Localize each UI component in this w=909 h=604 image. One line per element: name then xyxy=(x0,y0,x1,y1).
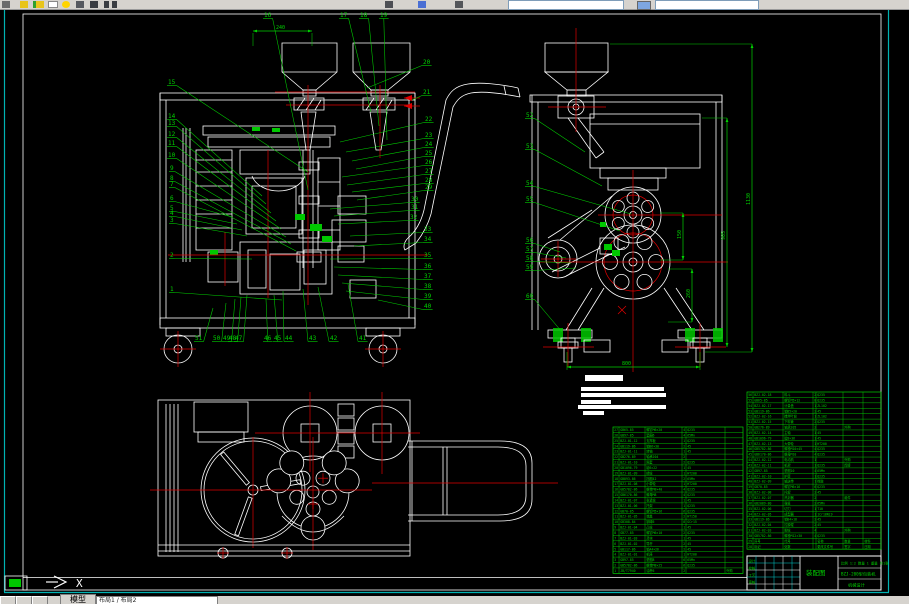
bom-cell: 螺钉M5×12 xyxy=(784,397,800,402)
bom-cell: 1 xyxy=(683,450,685,454)
dim-arrow xyxy=(682,256,685,260)
bom-cell: 切刀 xyxy=(784,506,790,511)
bom-cell: 45 xyxy=(817,436,821,440)
bom-cell: 40 xyxy=(748,480,752,484)
bom-cell: 垫圈10 xyxy=(784,468,794,473)
pan-icon[interactable] xyxy=(385,1,393,8)
bom-cell: BZJ-01-12 xyxy=(620,439,637,443)
bom-cell: GB77-85 xyxy=(620,531,634,535)
callout-leader xyxy=(347,175,424,186)
callout-leader xyxy=(175,172,286,238)
bom-cell: 2 xyxy=(814,409,816,413)
bom-cell: 8 xyxy=(814,398,816,402)
bom-cell: GB5782-86 xyxy=(620,564,637,568)
zoom-icon[interactable] xyxy=(418,1,426,8)
callout-number: 22 xyxy=(425,116,433,123)
ucs-x-label: X xyxy=(76,577,83,590)
bom-cell: 45 xyxy=(817,409,821,413)
callout-number: 3 xyxy=(170,217,174,224)
bom-cell: 51 xyxy=(748,420,752,424)
callout-leader xyxy=(334,211,410,217)
bom-cell: 31 xyxy=(748,529,752,533)
bom-cell: 14 xyxy=(614,498,618,502)
callout-number: 2 xyxy=(170,252,174,259)
bom-cell: Q235 xyxy=(687,531,695,535)
bom-cell: Q235 xyxy=(817,420,825,424)
hopper-right xyxy=(353,43,410,150)
bom-cell: 1 xyxy=(814,463,816,467)
callout-number: 18 xyxy=(360,12,368,19)
bom-cell: 3 xyxy=(614,558,616,562)
bom-cell: 外购 xyxy=(844,457,850,462)
tab-nav-prev-button[interactable] xyxy=(16,596,32,604)
bom-cell: 30 xyxy=(748,534,752,538)
bom-cell: 43 xyxy=(748,463,752,467)
bom-cell: 材料 xyxy=(864,538,871,543)
bom-cell: Q235 xyxy=(817,398,825,402)
bom-cell: 2 xyxy=(614,564,616,568)
bom-cell: 外购 xyxy=(844,528,850,533)
bom-cell: 9 xyxy=(614,526,616,530)
bom-cell: HT200 xyxy=(687,553,697,557)
bom-cell: 32 xyxy=(748,523,752,527)
cut-icon[interactable] xyxy=(76,1,84,8)
print-icon[interactable] xyxy=(48,1,58,8)
title-sig-label: 工艺 xyxy=(749,573,756,578)
bom-cell: 7 xyxy=(614,536,616,540)
bom-cell: 6 xyxy=(683,509,685,513)
bom-cell: JB/T7940 xyxy=(620,569,635,573)
bom-cell: 滑块 xyxy=(646,535,653,540)
callout-leader xyxy=(535,244,560,253)
bom-cell: 1 xyxy=(814,458,816,462)
callout-number: 17 xyxy=(340,12,348,19)
bom-cell: 标记 xyxy=(754,544,761,549)
callout-number: 55 xyxy=(526,196,534,203)
dim-text: 800 xyxy=(622,361,631,367)
bom-cell: 15 xyxy=(614,493,618,497)
bom-cell: 1 xyxy=(683,553,685,557)
bom-cell: 24 xyxy=(614,444,618,448)
dim-arrow xyxy=(567,366,571,369)
bom-cell: 28 xyxy=(748,545,752,549)
title-block: 设计校核工艺审核装配图比例 1:2 数量 1 重量 共1张BZJ-200型包装机… xyxy=(747,556,889,590)
note-text-bar xyxy=(578,405,666,409)
callout-number: 21 xyxy=(423,89,431,96)
bom-cell: 托架 xyxy=(646,503,653,508)
bom-cell: 17 xyxy=(614,482,618,486)
callout-number: 32 xyxy=(410,214,418,221)
drawing-canvas[interactable]: X 16171819151413121110987654321202122232… xyxy=(0,0,909,604)
discharge-tube xyxy=(404,83,520,250)
bom-cell: 8 xyxy=(614,531,616,535)
bom-cell: BZJ-01-05 xyxy=(620,515,637,519)
bom-cell: 1 xyxy=(683,536,685,540)
bom-cell: GB70-85 xyxy=(754,485,768,489)
callout-number: 27 xyxy=(425,168,433,175)
bom-cell: Q235 xyxy=(817,447,825,451)
undo-icon[interactable] xyxy=(104,1,109,8)
bom-cell: 1 xyxy=(814,431,816,435)
bom-cell: 45 xyxy=(687,542,691,546)
callout-number: 9 xyxy=(170,165,174,172)
bom-cell: 4 xyxy=(614,553,616,557)
bom-cell: GB5782-86 xyxy=(754,534,771,538)
bom-cell: BZJ-02-10 xyxy=(754,474,771,478)
bom-cell: 25 xyxy=(614,439,618,443)
bom-cell: 27 xyxy=(614,428,618,432)
bom-cell: 16 xyxy=(614,488,618,492)
callout-leader xyxy=(342,283,423,290)
bom-cell: GB6170-86 xyxy=(754,453,771,457)
bom-cell: 37 xyxy=(748,496,752,500)
bom-cell: Q235 xyxy=(687,428,695,432)
title-sig-label: 审核 xyxy=(749,580,756,585)
side-hopper xyxy=(545,43,608,158)
callout-number: 11 xyxy=(168,140,176,147)
bom-cell: 大带轮 xyxy=(784,441,794,446)
bom-cell: 44 xyxy=(748,458,752,462)
bom-table-right: 56BZJ-02-18料斗2Q23555GB65-85螺钉M5×128Q2355… xyxy=(747,392,881,549)
callout-number: 31 xyxy=(411,204,419,211)
bom-cell: 2 xyxy=(683,477,685,481)
bom-cell: 螺钉M6×16 xyxy=(784,484,800,489)
properties-icon[interactable] xyxy=(455,1,463,8)
note-text-bar xyxy=(581,387,664,391)
callout-leader xyxy=(204,308,213,342)
bom-cell: 45 xyxy=(687,466,691,470)
bom-cell: 4 xyxy=(814,447,816,451)
bom-cell: 42 xyxy=(748,469,752,473)
callout-number: 34 xyxy=(424,236,432,243)
callout-number: 41 xyxy=(359,335,367,342)
parts-list-tables: 27GB65-85螺钉M6×204Q23526GB97-85垫圈6465Mn25… xyxy=(613,392,881,573)
bom-cell: 挡圈42 xyxy=(646,476,656,481)
bom-cell: 热封器 xyxy=(784,495,794,500)
bom-cell: 38 xyxy=(748,491,752,495)
bom-cell: 钢球6 xyxy=(646,519,654,524)
bom-cell: BZJ-02-06 xyxy=(754,507,771,511)
bom-cell: 成型器 xyxy=(784,511,794,516)
bom-cell: 55 xyxy=(748,398,752,402)
bom-cell: Q235 xyxy=(687,461,695,465)
bom-cell: 45 xyxy=(817,518,821,522)
bom-cell: 2 xyxy=(814,518,816,522)
preview-icon[interactable] xyxy=(62,1,70,8)
bom-cell: 张紧轮 xyxy=(646,497,656,502)
dim-arrow xyxy=(253,30,257,33)
bom-cell: 1Cr18Ni9 xyxy=(817,512,832,516)
bom-cell: HT200 xyxy=(687,482,697,486)
callout-leader xyxy=(330,203,410,210)
bom-cell: BZJ-01-10 xyxy=(620,461,637,465)
bom-cell: 键8×36 xyxy=(784,435,795,440)
bom-cell: 35 xyxy=(748,507,752,511)
bom-cell: 1 xyxy=(814,474,816,478)
callout-leader xyxy=(342,166,424,178)
bom-cell: GB1096-79 xyxy=(620,466,637,470)
bom-cell: BZJ-01-09 xyxy=(620,471,637,475)
callout-number: 29 xyxy=(425,184,433,191)
callout-number: 14 xyxy=(168,113,176,120)
bom-cell: BZJ-01-01 xyxy=(620,553,637,557)
drawing-model-text: BZJ-200型包装机 xyxy=(841,571,876,578)
callout-number: 42 xyxy=(330,335,338,342)
bom-cell: 41 xyxy=(748,474,752,478)
bom-cell: GB117-86 xyxy=(620,547,635,551)
bom-cell: 19 xyxy=(614,471,618,475)
callout-leader xyxy=(318,287,329,342)
bom-cell: 6 xyxy=(683,564,685,568)
callout-number: 7 xyxy=(170,181,174,188)
bom-cell: 36 xyxy=(748,501,752,505)
bom-cell: GB65-85 xyxy=(754,398,768,402)
bom-cell: 65Mn xyxy=(687,477,695,481)
bom-cell: 4 xyxy=(683,433,685,437)
bom-cell: 下料管 xyxy=(784,419,794,424)
callout-leader xyxy=(338,275,423,280)
bom-cell: BZJ-02-14 xyxy=(754,431,771,435)
bom-cell: 螺钉M5×16 xyxy=(646,508,662,513)
dim-arrow xyxy=(726,343,729,347)
layer-control-combo[interactable] xyxy=(508,0,624,10)
callout-number: 50 xyxy=(213,335,221,342)
callout-leader xyxy=(175,212,237,225)
callout-leader xyxy=(378,300,423,310)
callout-number: 15 xyxy=(168,79,176,86)
bom-cell: 2 xyxy=(814,426,816,430)
bom-cell: BZJ-02-11 xyxy=(754,463,771,467)
dim-arrow xyxy=(691,269,694,273)
bom-cell: Q235 xyxy=(687,564,695,568)
bom-cell: 导杆 xyxy=(646,541,653,546)
bom-cell: BZJ-01-11 xyxy=(620,450,637,454)
bom-cell: 螺母M8 xyxy=(646,492,656,497)
bom-cell: 处数 xyxy=(784,544,791,549)
callout-leader xyxy=(348,284,358,342)
bom-cell: BZJ-01-08 xyxy=(620,482,637,486)
open-icon[interactable] xyxy=(20,1,28,8)
bom-cell: Q235 xyxy=(687,504,695,508)
side-foot-right xyxy=(662,323,726,367)
bom-cell: 1 xyxy=(814,512,816,516)
callout-number: 37 xyxy=(424,273,432,280)
bom-cell: 护罩 xyxy=(784,473,790,478)
callout-number: 24 xyxy=(425,141,433,148)
note-text-bar xyxy=(581,393,666,397)
bom-cell: GB119-86 xyxy=(754,409,769,413)
pulley-upper xyxy=(598,187,722,243)
bom-cell: 4 xyxy=(814,529,816,533)
dim-text: 905 xyxy=(721,231,727,240)
callout-number: 6 xyxy=(170,195,174,202)
callout-number: 44 xyxy=(285,335,293,342)
bom-cell: GB70-85 xyxy=(620,509,634,513)
bom-cell: 65Mn xyxy=(817,469,825,473)
bom-cell: Q235 xyxy=(687,439,695,443)
bom-cell: BZJ-02-18 xyxy=(754,393,771,397)
bom-cell: GB97-85 xyxy=(620,433,634,437)
bom-cell: BZJ-02-13 xyxy=(754,442,771,446)
bom-cell: 1 xyxy=(683,526,685,530)
bom-table-left: 27GB65-85螺钉M6×204Q23526GB97-85垫圈6465Mn25… xyxy=(613,427,743,573)
bom-cell: 电动机 xyxy=(784,457,794,462)
bom-cell: 2 xyxy=(814,501,816,505)
bom-cell: 2 xyxy=(814,496,816,500)
bom-cell: BZJ-02-08 xyxy=(754,491,771,495)
callout-number: 52 xyxy=(526,112,534,119)
bom-cell: 65Mn xyxy=(817,501,825,505)
bom-cell: 2 xyxy=(683,444,685,448)
callout-leader xyxy=(346,139,424,153)
bom-cell: 日期 xyxy=(864,544,870,549)
bom-cell: 1 xyxy=(814,442,816,446)
bom-cell: 20 xyxy=(614,466,618,470)
bom-cell: 45 xyxy=(748,453,752,457)
bom-cell: 10 xyxy=(614,520,618,524)
callout-leader xyxy=(273,19,308,191)
callout-leader xyxy=(535,119,585,153)
bom-cell: BZJ-02-09 xyxy=(754,480,771,484)
dim-arrow xyxy=(726,118,729,122)
bom-cell: 52 xyxy=(748,415,752,419)
bom-cell: 56 xyxy=(748,393,752,397)
bom-cell: 2 xyxy=(683,542,685,546)
callout-number: 51 xyxy=(195,335,203,342)
front-centerlines xyxy=(168,85,428,305)
bom-cell: HT150 xyxy=(687,515,697,519)
dim-arrow xyxy=(696,366,700,369)
callout-number: 30 xyxy=(411,196,419,203)
plan-view xyxy=(150,392,558,559)
bom-cell: 54 xyxy=(748,404,752,408)
callout-number: 10 xyxy=(168,152,176,159)
bom-cell: 2 xyxy=(683,531,685,535)
bom-cell: 4 xyxy=(814,469,816,473)
bom-cell: 螺栓M8×25 xyxy=(646,563,662,568)
bom-cell: GB5782-86 xyxy=(754,447,771,451)
callout-number: 43 xyxy=(309,335,317,342)
callout-number: 35 xyxy=(424,252,432,259)
dim-arrow xyxy=(751,44,754,48)
dim-text: 240 xyxy=(276,25,285,31)
dim-arrow xyxy=(751,348,754,352)
save-icon[interactable] xyxy=(33,1,44,8)
bom-cell: BZJ-02-15 xyxy=(754,420,771,424)
bom-cell: 拉膜辊 xyxy=(784,522,794,527)
callout-number: 16 xyxy=(264,12,272,19)
bom-cell: GB308-84 xyxy=(620,520,635,524)
bom-cell: 2 xyxy=(683,547,685,551)
bom-cell: 轴承204 xyxy=(646,454,658,459)
bom-cell: BZJ-01-04 xyxy=(620,526,637,530)
bom-cell: GB97-85 xyxy=(754,469,768,473)
callout-number: 56 xyxy=(526,237,534,244)
bom-cell: 34 xyxy=(748,512,752,516)
bom-cell: 槽轮 xyxy=(646,470,653,475)
bom-cell: T10 xyxy=(817,507,823,511)
bom-cell: 弹簧 xyxy=(784,500,791,505)
copy-icon[interactable] xyxy=(90,1,98,8)
bom-cell: 4 xyxy=(814,534,816,538)
callout-number: 36 xyxy=(424,263,432,270)
bom-cell: Q235 xyxy=(817,485,825,489)
callout-leader xyxy=(334,267,423,270)
bom-cell: 2 xyxy=(683,569,685,573)
bom-cell: 螺栓M8×40 xyxy=(646,487,662,492)
bom-cell: Q235 xyxy=(687,493,695,497)
bom-cell: BZJ-02-05 xyxy=(754,512,771,516)
bom-cell: 12 xyxy=(614,509,618,513)
note-text-bar xyxy=(581,400,611,404)
callout-number: 60 xyxy=(526,293,534,300)
bom-cell: 49 xyxy=(748,431,752,435)
bom-cell: 料斗 xyxy=(784,392,790,397)
bom-cell: 23 xyxy=(614,450,618,454)
bom-cell: 13 xyxy=(614,504,618,508)
bom-cell: 机座 xyxy=(646,552,653,557)
ucs-icon: X xyxy=(5,576,83,590)
drawing-sheet-text: 机械设计 xyxy=(848,582,865,589)
bom-cell: BZJ-01-06 xyxy=(620,504,637,508)
bom-cell: 垫圈8 xyxy=(646,557,654,562)
bom-cell: 39 xyxy=(748,485,752,489)
callout-annotations: 1617181915141312111098765432120212223242… xyxy=(167,12,631,342)
callout-leader xyxy=(175,188,296,252)
layout-tabs[interactable]: 布局1 / 布局2 xyxy=(96,596,218,604)
callout-number: 26 xyxy=(425,159,433,166)
bom-cell: 销B6×30 xyxy=(646,443,659,448)
bom-cell: 名称 xyxy=(817,538,824,543)
bom-cell: 螺栓M10×45 xyxy=(784,446,802,451)
bom-cell: 4 xyxy=(683,428,685,432)
dim-arrow xyxy=(691,318,694,322)
bom-cell: 垫圈6 xyxy=(646,432,654,437)
redo-icon[interactable] xyxy=(112,1,117,8)
bom-cell: Q235 xyxy=(817,534,825,538)
callout-leader xyxy=(352,184,424,193)
new-icon[interactable] xyxy=(2,1,10,8)
bom-cell: 6 xyxy=(814,485,816,489)
layout-tab-bar: 模型 布局1 / 布局2 xyxy=(0,596,909,604)
tab-nav-next-button[interactable] xyxy=(32,596,48,604)
callout-leader xyxy=(177,159,281,230)
bom-cell: 计量盘 xyxy=(784,403,794,408)
callout-number: 40 xyxy=(424,303,432,310)
bom-cell: 53 xyxy=(748,409,752,413)
technical-notes-block xyxy=(578,375,666,415)
bom-cell: BZJ-02-04 xyxy=(754,523,771,527)
title-sig-label: 校核 xyxy=(749,566,756,571)
callout-leader xyxy=(535,187,631,215)
plan-motor xyxy=(194,402,248,442)
plan-centerlines xyxy=(150,437,410,559)
callout-number: 54 xyxy=(526,180,534,187)
bom-cell: 46 xyxy=(748,447,752,451)
bom-cell: GB2089-80 xyxy=(754,501,771,505)
model-tab[interactable]: 模型 xyxy=(60,594,96,604)
dim-text: 150 xyxy=(677,230,683,239)
color-swatch-icon[interactable] xyxy=(637,1,651,10)
bom-cell: 65Mn xyxy=(687,558,695,562)
bom-cell: 47 xyxy=(748,442,752,446)
bom-cell: 1 xyxy=(683,504,685,508)
top-toolbar xyxy=(0,0,909,10)
callout-number: 25 xyxy=(425,150,433,157)
linetype-combo[interactable] xyxy=(655,0,759,10)
callout-number: 58 xyxy=(526,255,534,262)
tab-nav-first-button[interactable] xyxy=(0,596,16,604)
